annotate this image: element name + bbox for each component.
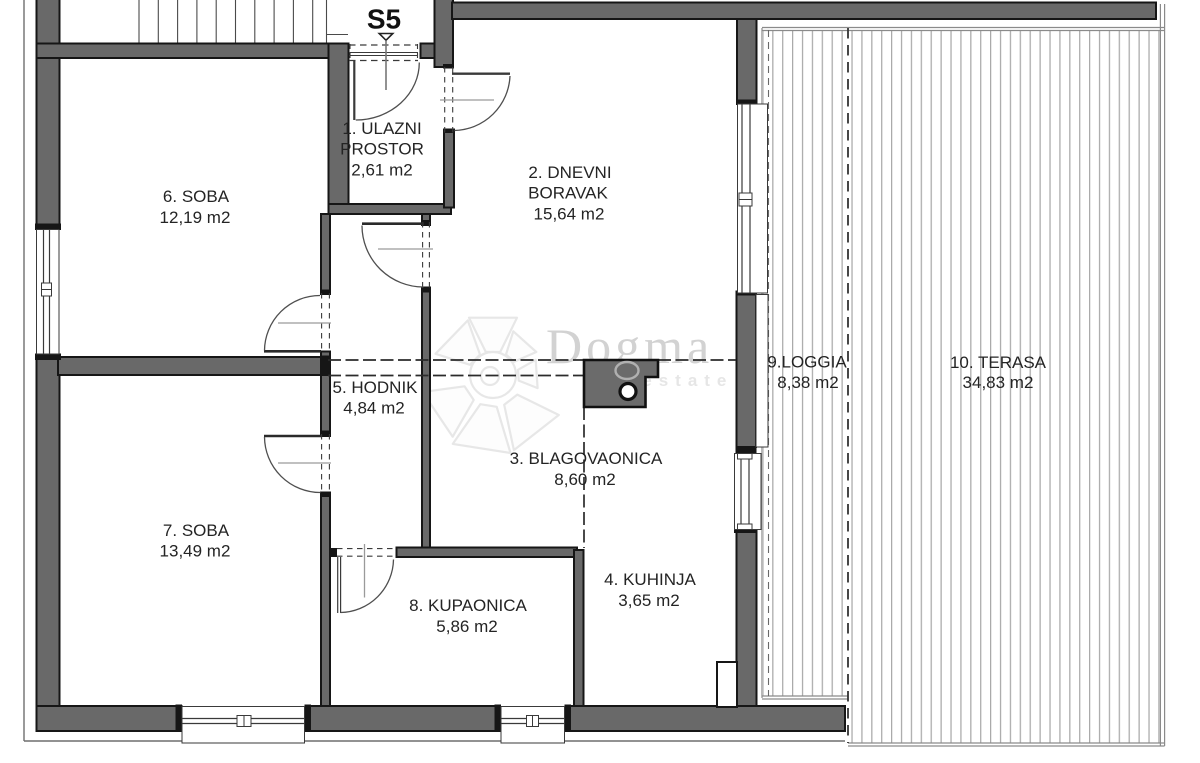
svg-text:3. BLAGOVAONICA: 3. BLAGOVAONICA	[510, 449, 663, 468]
svg-text:6. SOBA: 6. SOBA	[163, 187, 230, 206]
svg-text:9.LOGGIA: 9.LOGGIA	[767, 353, 847, 372]
svg-text:S5: S5	[367, 4, 401, 35]
svg-text:3,65 m2: 3,65 m2	[618, 591, 679, 610]
svg-text:2,61 m2: 2,61 m2	[351, 161, 412, 180]
svg-text:2. DNEVNI: 2. DNEVNI	[528, 163, 611, 182]
svg-text:4,84 m2: 4,84 m2	[343, 399, 404, 418]
svg-text:BORAVAK: BORAVAK	[528, 184, 608, 203]
svg-text:8,38 m2: 8,38 m2	[777, 373, 838, 392]
svg-text:13,49 m2: 13,49 m2	[160, 542, 231, 561]
svg-text:5. HODNIK: 5. HODNIK	[332, 378, 418, 397]
svg-text:34,83 m2: 34,83 m2	[963, 373, 1034, 392]
svg-text:7. SOBA: 7. SOBA	[163, 521, 230, 540]
svg-text:PROSTOR: PROSTOR	[340, 140, 424, 159]
svg-text:8,60 m2: 8,60 m2	[554, 470, 615, 489]
svg-text:15,64 m2: 15,64 m2	[534, 205, 605, 224]
svg-text:8. KUPAONICA: 8. KUPAONICA	[409, 596, 527, 615]
svg-text:5,86 m2: 5,86 m2	[436, 617, 497, 636]
svg-text:1. ULAZNI: 1. ULAZNI	[342, 119, 421, 138]
svg-text:4. KUHINJA: 4. KUHINJA	[604, 570, 696, 589]
svg-text:12,19 m2: 12,19 m2	[160, 208, 231, 227]
svg-text:10. TERASA: 10. TERASA	[950, 353, 1047, 372]
